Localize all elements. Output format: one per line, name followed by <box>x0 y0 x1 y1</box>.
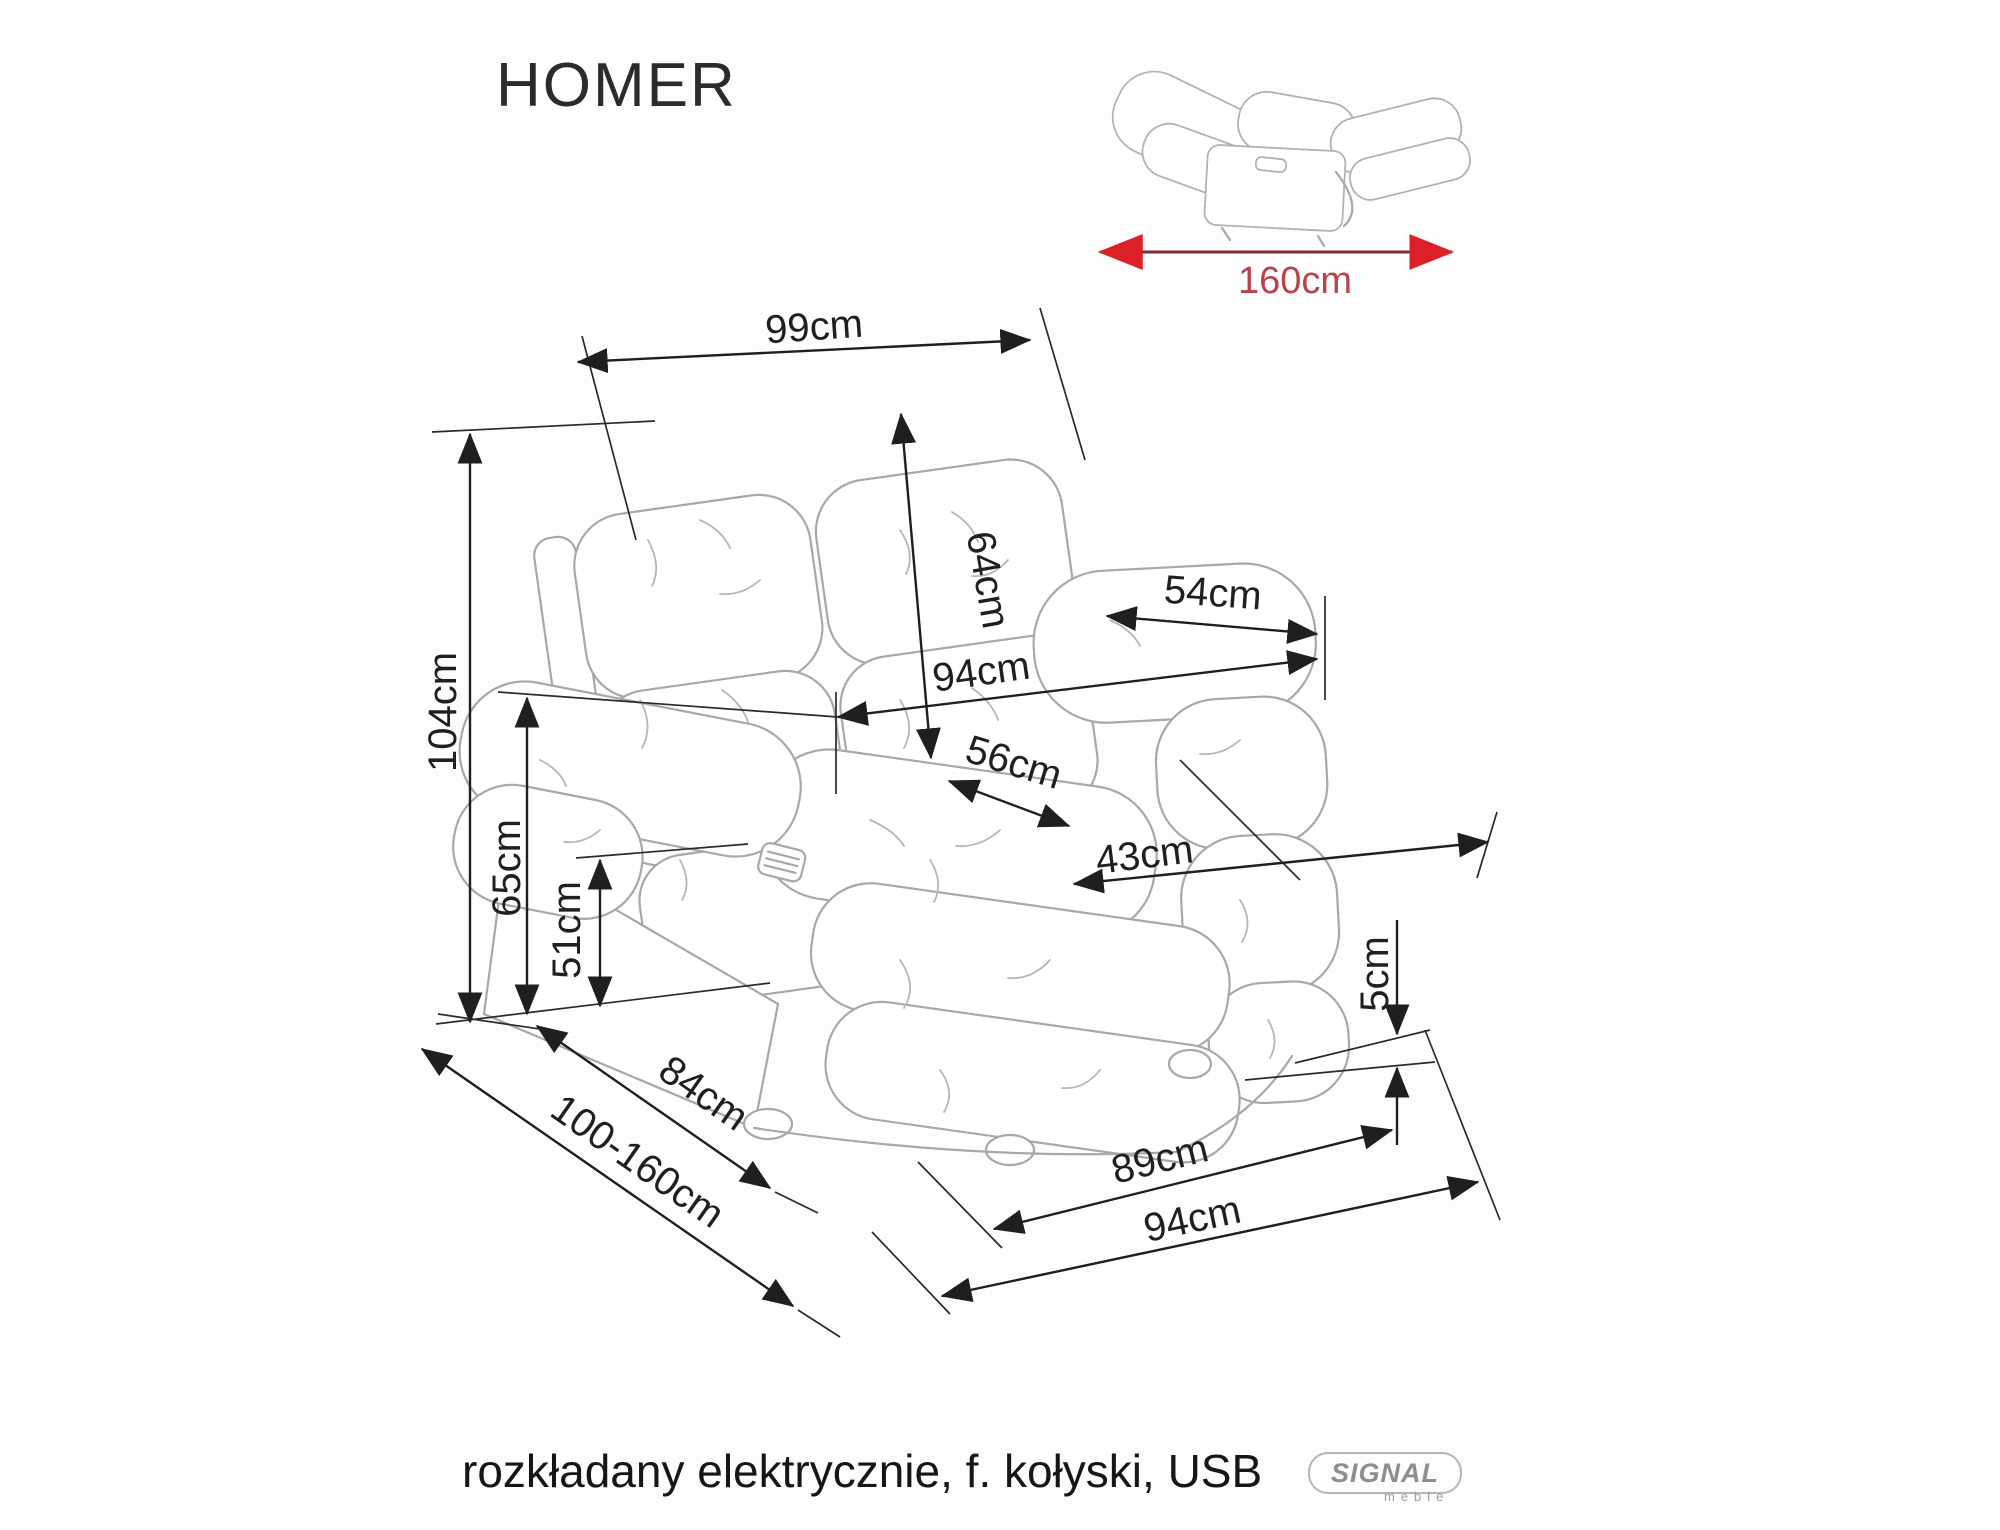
ext-height-top <box>432 421 655 432</box>
ext-headrest-left <box>582 336 636 540</box>
brand-logo-text: SIGNAL <box>1331 1458 1439 1489</box>
ext-extended-far-end <box>798 1310 840 1337</box>
brand-logo: SIGNAL <box>1308 1452 1462 1494</box>
ext-backrest-right-top <box>1040 308 1085 460</box>
ext-seat-depth-right <box>1477 812 1497 878</box>
ext-base-width-left <box>918 1162 1002 1248</box>
label-back-to-armrest: 54cm <box>1163 568 1264 619</box>
chair-foot <box>744 1109 792 1139</box>
reclined-length-label: 160cm <box>1238 260 1352 302</box>
brand-logo-subtext: meble <box>1384 1489 1449 1504</box>
main-chair-sketch <box>431 453 1351 1170</box>
reclined-length-dimension: 160cm <box>1100 252 1452 302</box>
label-overall-width: 94cm <box>1140 1188 1245 1251</box>
dimension-sheet: HOMER 160cm <box>0 0 2000 1530</box>
product-description: rozkładany elektrycznie, f. kołyski, USB <box>462 1444 1262 1498</box>
reclined-chair-sketch <box>1100 59 1474 246</box>
label-armrest-height: 65cm <box>485 819 529 917</box>
thumb-control-pad <box>1255 157 1286 173</box>
chair-foot <box>1169 1050 1211 1078</box>
label-seat-height: 51cm <box>545 881 589 979</box>
label-total-height: 104cm <box>421 652 465 772</box>
thumb-base <box>1204 144 1346 231</box>
ext-depth-far-end <box>775 1192 818 1213</box>
diagram-svg: 160cm <box>0 0 2000 1530</box>
chair-foot <box>986 1135 1034 1165</box>
ext-overall-width-left <box>872 1232 950 1314</box>
label-top-width: 99cm <box>764 302 865 353</box>
label-clearance: 5cm <box>1353 936 1397 1012</box>
